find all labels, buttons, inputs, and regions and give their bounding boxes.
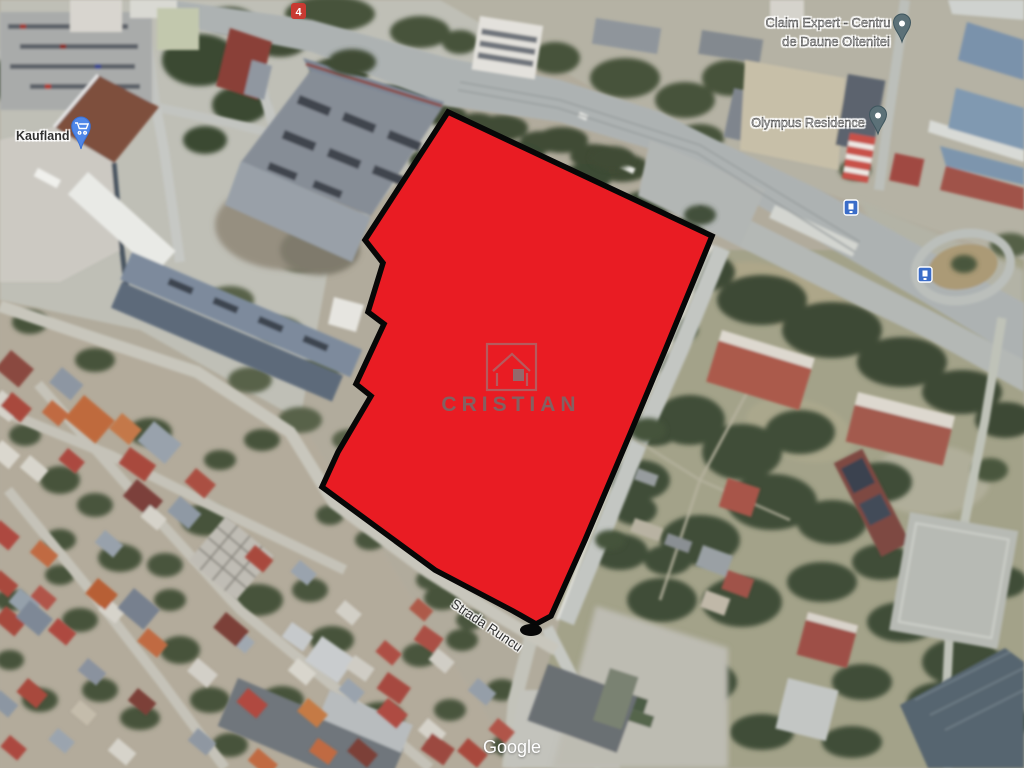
svg-text:CRISTIAN: CRISTIAN xyxy=(441,393,580,416)
svg-text:Google: Google xyxy=(483,737,541,757)
svg-text:de Daune Oltenitei: de Daune Oltenitei xyxy=(782,34,890,49)
svg-text:Kaufland: Kaufland xyxy=(16,129,69,143)
svg-text:4: 4 xyxy=(295,7,302,19)
svg-text:Olympus Residence: Olympus Residence xyxy=(751,116,865,130)
svg-text:Claim Expert - Centru: Claim Expert - Centru xyxy=(766,15,891,30)
